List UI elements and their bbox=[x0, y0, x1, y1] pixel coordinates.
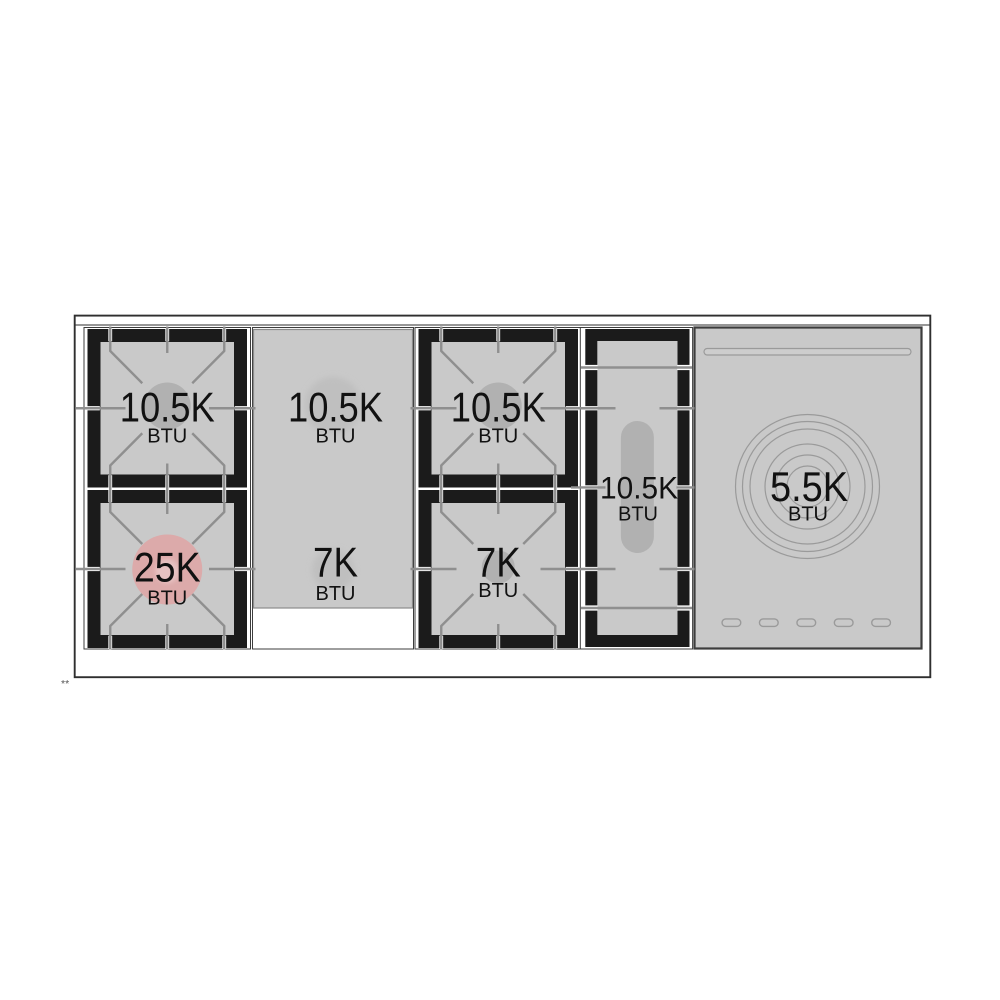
svg-text:7K: 7K bbox=[313, 538, 358, 585]
svg-text:BTU: BTU bbox=[147, 588, 187, 610]
svg-text:BTU: BTU bbox=[316, 425, 356, 447]
svg-text:25K: 25K bbox=[134, 544, 201, 591]
svg-text:BTU: BTU bbox=[618, 504, 658, 526]
svg-text:10.5K: 10.5K bbox=[600, 469, 678, 505]
svg-text:BTU: BTU bbox=[316, 583, 356, 605]
svg-text:10.5K: 10.5K bbox=[451, 383, 546, 430]
svg-text:10.5K: 10.5K bbox=[120, 383, 215, 430]
svg-text:7K: 7K bbox=[476, 538, 521, 585]
svg-text:**: ** bbox=[61, 678, 69, 690]
svg-text:10.5K: 10.5K bbox=[288, 383, 383, 430]
svg-text:BTU: BTU bbox=[478, 580, 518, 602]
svg-text:BTU: BTU bbox=[147, 425, 187, 447]
svg-text:BTU: BTU bbox=[788, 504, 828, 526]
svg-text:BTU: BTU bbox=[478, 425, 518, 447]
